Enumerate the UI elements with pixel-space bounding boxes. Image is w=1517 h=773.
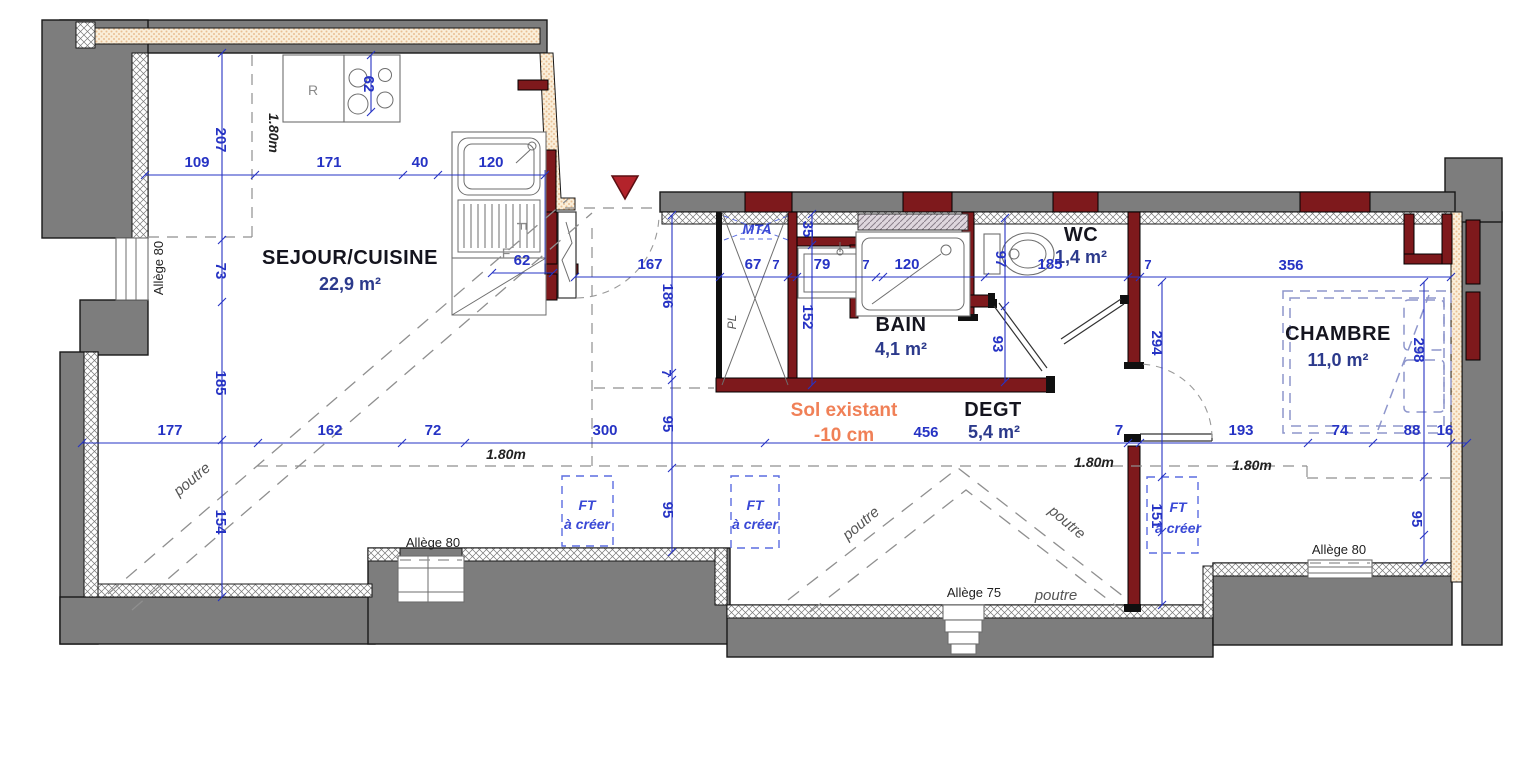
height-line-bottom-2: 1.80m: [1074, 454, 1114, 470]
dim-177: 177: [157, 422, 182, 439]
dim-40: 40: [412, 154, 429, 171]
beam-label-degt-left: poutre: [839, 503, 883, 544]
dim-35: 35: [799, 221, 816, 238]
window-bottom-right: [1308, 560, 1372, 578]
room-area-sejour: 22,9 m²: [319, 274, 381, 294]
dim-95-b: 95: [659, 502, 676, 519]
dim-79: 79: [814, 256, 831, 273]
dim-7-b: 7: [862, 257, 869, 272]
oven-label-rotated: F: [514, 222, 530, 231]
bedroom-door: [1138, 364, 1212, 441]
ft-label-1b: à créer: [564, 516, 611, 532]
room-label-sejour: SEJOUR/CUISINE: [262, 247, 438, 269]
dim-62-stove: 62: [360, 76, 377, 93]
dim-120-sink: 120: [478, 154, 503, 171]
entrance-marker-icon: [612, 176, 638, 199]
dim-7-ent: 7: [659, 369, 674, 376]
dim-154: 154: [212, 509, 229, 535]
oven-label: F: [502, 245, 511, 261]
dim-95-a: 95: [659, 416, 676, 433]
dim-88: 88: [1404, 422, 1421, 439]
dim-95-right: 95: [1408, 511, 1425, 528]
labels: SEJOUR/CUISINE 22,9 m² BAIN 4,1 m² WC 1,…: [151, 76, 1453, 604]
dim-152: 152: [799, 304, 816, 329]
dim-109: 109: [184, 154, 209, 171]
room-label-chambre: CHAMBRE: [1285, 323, 1391, 345]
dim-7-c: 7: [1144, 257, 1151, 272]
dim-16: 16: [1437, 422, 1454, 439]
mta-label: MTA: [742, 221, 771, 237]
dim-62-sink: 62: [514, 252, 531, 269]
dim-207: 207: [212, 127, 229, 152]
height-line-kitchen: 1.80m: [266, 113, 282, 153]
height-line-bottom-1: 1.80m: [486, 446, 526, 462]
sill-label-left: Allège 80: [151, 241, 166, 295]
wc-door: [1061, 295, 1129, 344]
dim-97: 97: [992, 251, 1009, 268]
dim-167: 167: [637, 256, 662, 273]
shower: [856, 232, 970, 316]
floor-plan-drawing: SEJOUR/CUISINE 22,9 m² BAIN 4,1 m² WC 1,…: [0, 0, 1517, 773]
fridge-label: R: [308, 82, 318, 98]
dim-93: 93: [989, 336, 1006, 353]
floor-note-value: -10 cm: [814, 425, 874, 446]
entrance-door: [558, 212, 659, 298]
sill-label-bottom-left: Allège 80: [406, 535, 460, 550]
dim-7-a: 7: [772, 257, 779, 272]
bathroom-niche: [858, 214, 968, 230]
dim-298: 298: [1410, 337, 1427, 362]
dim-300: 300: [592, 422, 617, 439]
ft-label-2b: à créer: [732, 516, 779, 532]
room-area-chambre: 11,0 m²: [1307, 350, 1368, 370]
dim-73: 73: [212, 263, 229, 280]
dim-162: 162: [317, 422, 342, 439]
dim-185-left: 185: [212, 370, 229, 395]
window-bottom-left: [398, 556, 464, 602]
floor-plan-page: SEJOUR/CUISINE 22,9 m² BAIN 4,1 m² WC 1,…: [0, 0, 1517, 773]
dim-120: 120: [894, 256, 919, 273]
fixtures: [283, 55, 1451, 433]
beam-label-degt-right: poutre: [1044, 502, 1088, 543]
beam-label-degt-bottom: poutre: [1034, 587, 1078, 604]
dim-171: 171: [316, 154, 341, 171]
sill-label-bottom-center: Allège 75: [947, 585, 1001, 600]
exterior-walls: [42, 20, 1502, 657]
dim-72: 72: [425, 422, 442, 439]
dim-186: 186: [659, 283, 676, 308]
dim-294: 294: [1148, 330, 1165, 356]
room-label-degt: DEGT: [964, 399, 1022, 421]
room-area-degt: 5,4 m²: [968, 422, 1020, 442]
dim-67: 67: [745, 256, 762, 273]
dim-456: 456: [913, 424, 938, 441]
ft-label-3b: à créer: [1155, 520, 1202, 536]
pl-label: PL: [725, 315, 739, 330]
sill-label-bottom-right: Allège 80: [1312, 542, 1366, 557]
window-left: [116, 238, 148, 300]
room-area-bain: 4,1 m²: [875, 339, 927, 359]
dim-185: 185: [1037, 256, 1062, 273]
room-area-wc: 1,4 m²: [1055, 247, 1107, 267]
dim-193: 193: [1228, 422, 1253, 439]
dim-74: 74: [1332, 422, 1349, 439]
room-label-wc: WC: [1064, 224, 1098, 246]
beam-label-sejour: poutre: [170, 459, 214, 500]
dim-356: 356: [1278, 257, 1303, 274]
dim-7-main: 7: [1115, 422, 1123, 439]
ft-label-2a: FT: [746, 497, 765, 513]
floor-note-title: Sol existant: [791, 400, 898, 421]
ft-label-3a: FT: [1169, 499, 1188, 515]
room-label-bain: BAIN: [876, 314, 927, 336]
ft-label-1a: FT: [578, 497, 597, 513]
height-line-bottom-3: 1.80m: [1232, 457, 1272, 473]
